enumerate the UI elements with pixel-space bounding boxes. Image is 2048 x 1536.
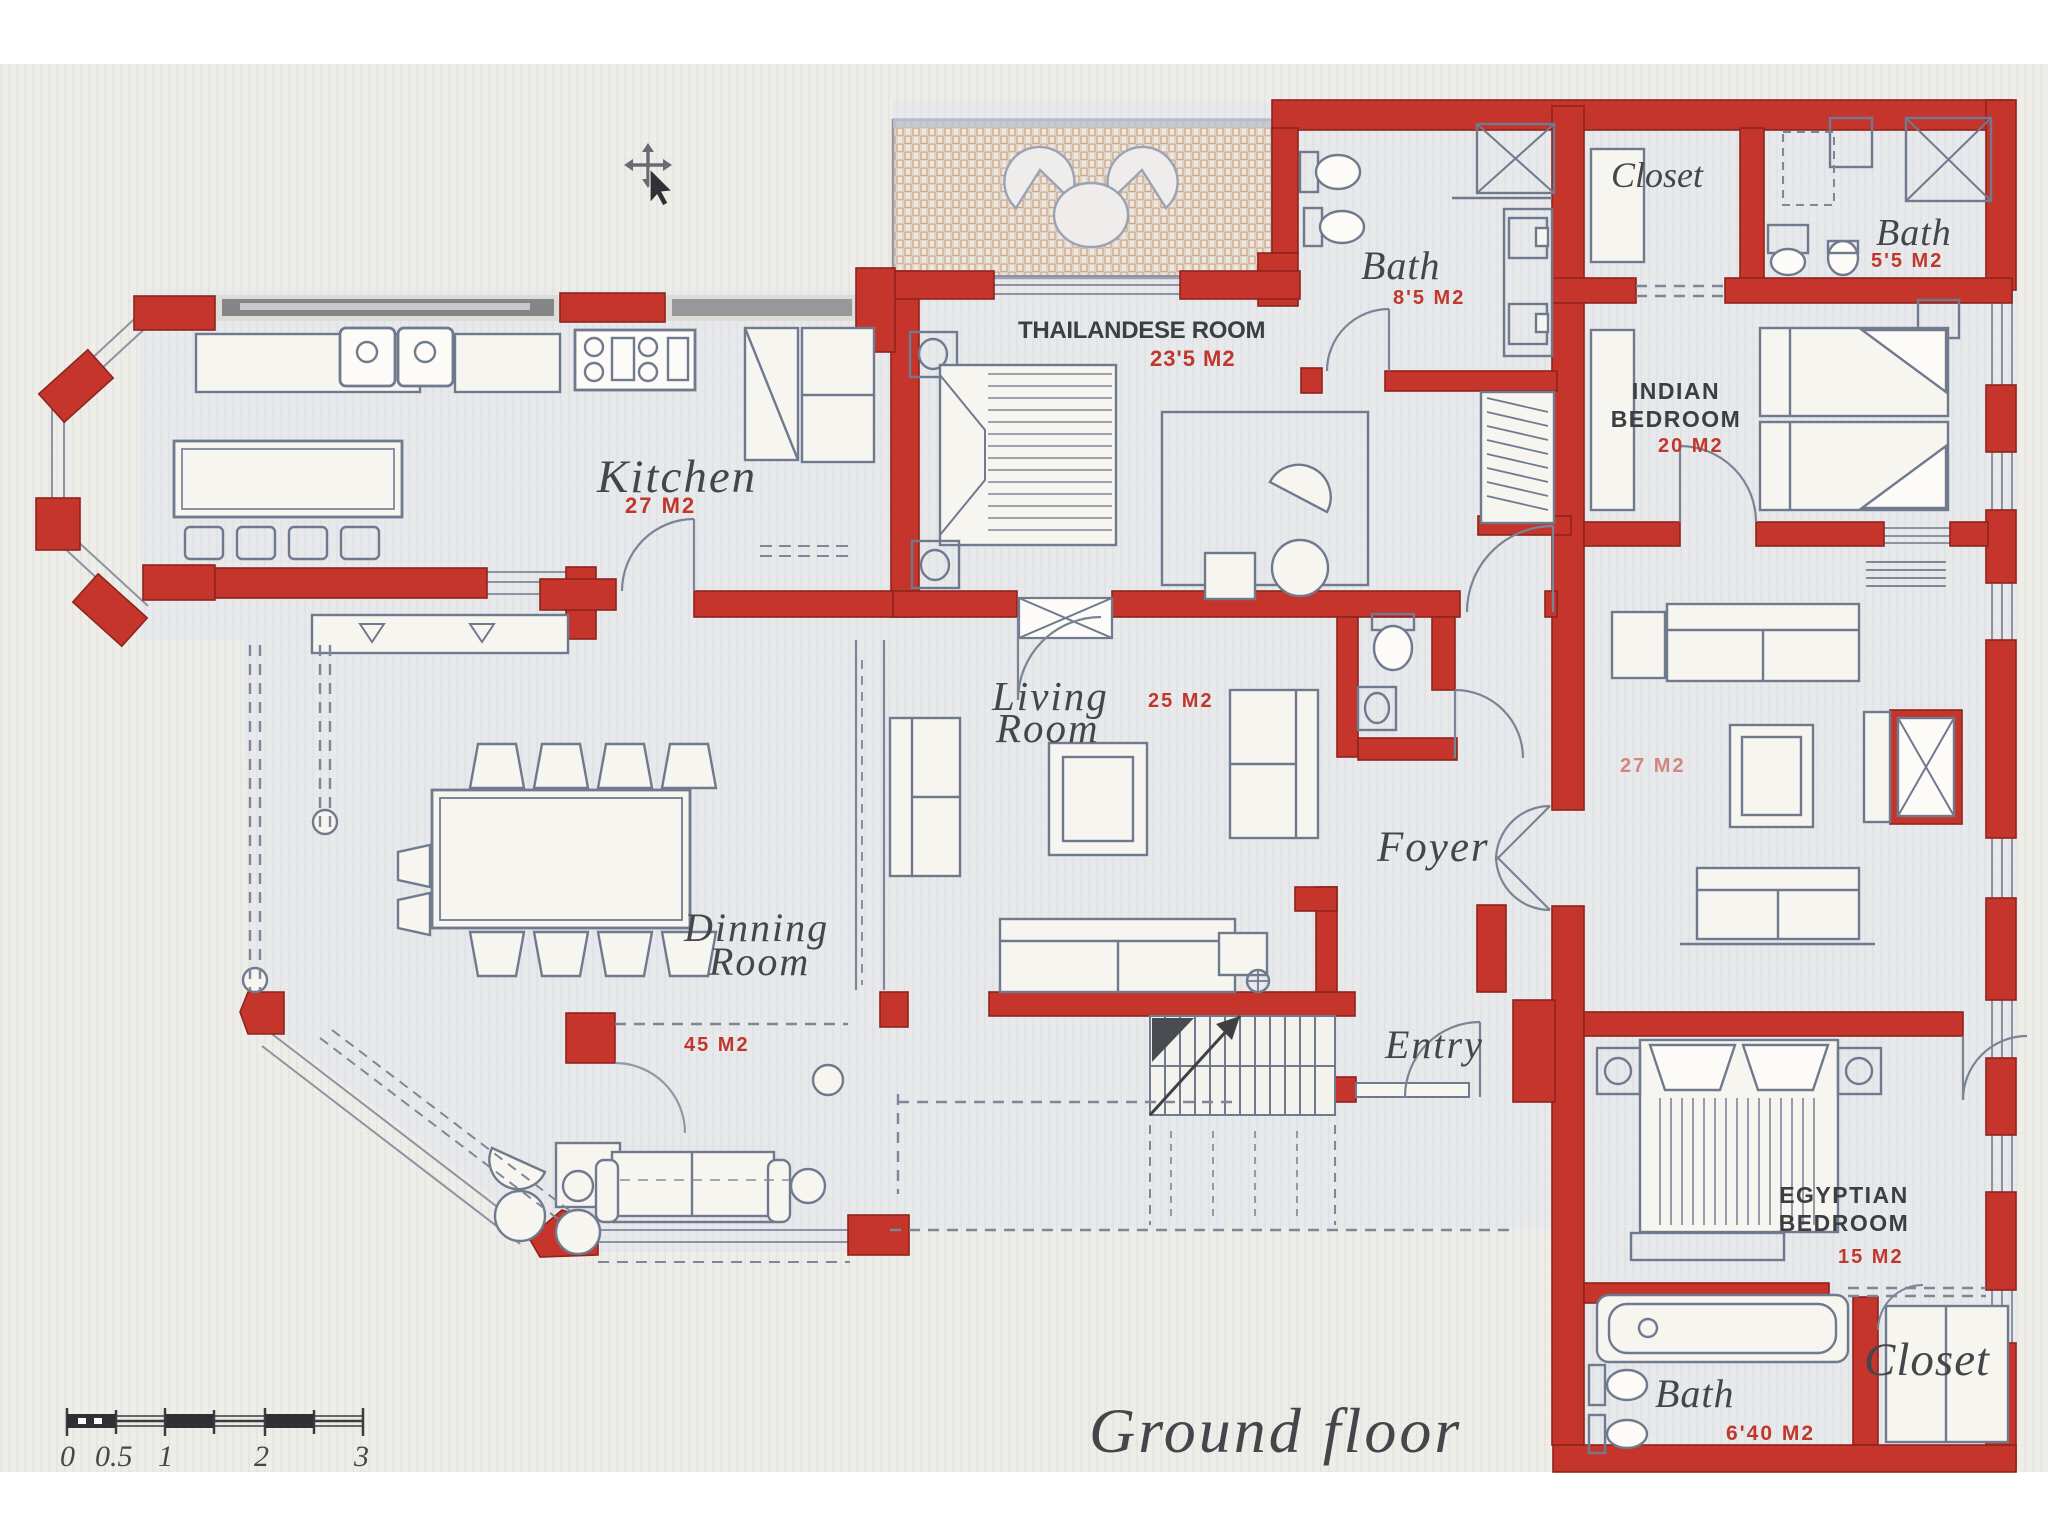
svg-text:Closet: Closet — [1611, 155, 1704, 195]
svg-text:3: 3 — [353, 1440, 369, 1473]
svg-text:Ground floor: Ground floor — [1089, 1395, 1462, 1466]
svg-text:5'5 M2: 5'5 M2 — [1871, 250, 1943, 272]
svg-text:Bath: Bath — [1361, 243, 1441, 288]
svg-text:45 M2: 45 M2 — [684, 1034, 750, 1056]
svg-text:2: 2 — [254, 1440, 269, 1473]
svg-text:27 M2: 27 M2 — [1620, 755, 1686, 777]
svg-text:Closet: Closet — [1864, 1334, 1990, 1386]
svg-text:15 M2: 15 M2 — [1838, 1246, 1904, 1268]
svg-text:INDIAN: INDIAN — [1632, 378, 1720, 404]
svg-text:23'5 M2: 23'5 M2 — [1150, 346, 1236, 371]
svg-text:27 M2: 27 M2 — [625, 493, 696, 518]
svg-text:Foyer: Foyer — [1376, 824, 1490, 871]
svg-text:6'40 M2: 6'40 M2 — [1726, 1422, 1815, 1445]
svg-text:25 M2: 25 M2 — [1148, 690, 1214, 712]
svg-text:BEDROOM: BEDROOM — [1611, 406, 1742, 432]
svg-text:20 M2: 20 M2 — [1658, 435, 1724, 457]
svg-text:THAILANDESE ROOM: THAILANDESE ROOM — [1018, 317, 1265, 344]
svg-text:1: 1 — [158, 1440, 173, 1473]
svg-text:Bath: Bath — [1655, 1371, 1735, 1416]
svg-text:EGYPTIAN: EGYPTIAN — [1779, 1182, 1909, 1208]
svg-text:BEDROOM: BEDROOM — [1779, 1210, 1910, 1236]
svg-text:8'5 M2: 8'5 M2 — [1393, 287, 1465, 309]
svg-text:0.5: 0.5 — [95, 1440, 133, 1473]
svg-text:0: 0 — [60, 1440, 75, 1473]
svg-text:Room: Room — [708, 939, 810, 984]
svg-text:Room: Room — [995, 705, 1100, 751]
svg-text:Bath: Bath — [1876, 212, 1952, 254]
svg-text:Entry: Entry — [1384, 1022, 1484, 1067]
